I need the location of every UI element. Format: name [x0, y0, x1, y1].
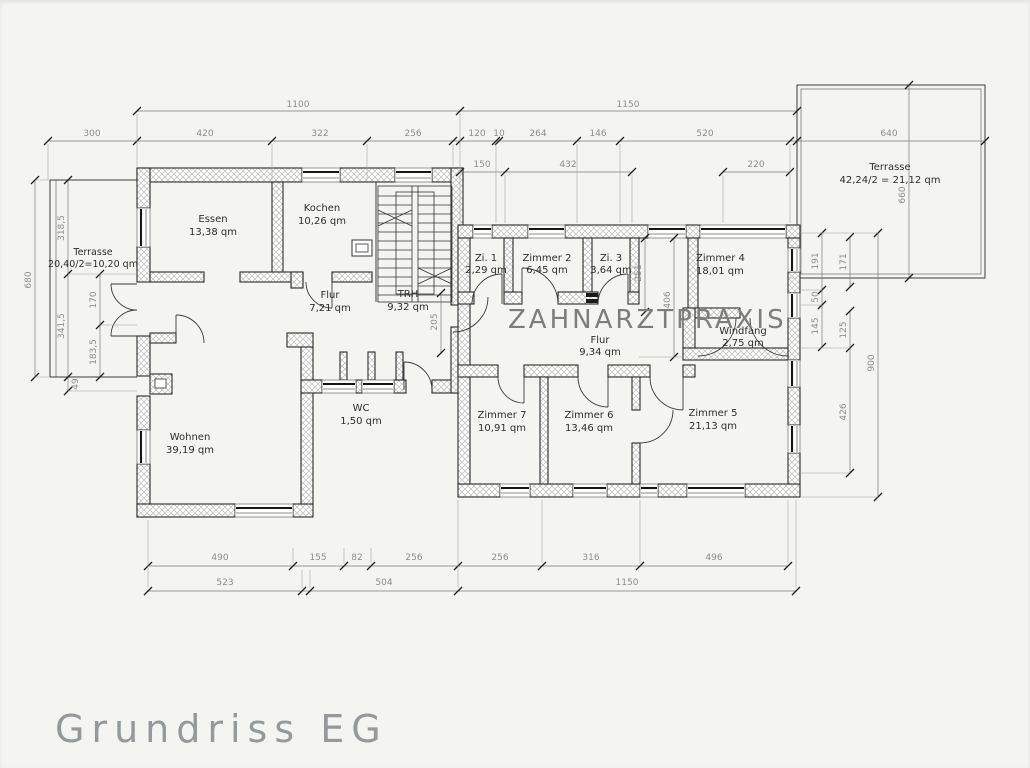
dimensions-right: 191 50 145 171 125 426 900 660: [788, 81, 913, 501]
z6-z5-door-arc: [640, 410, 673, 443]
room-area-zimmer6: 13,46 qm: [565, 423, 613, 434]
zimmer5-door-arc: [650, 377, 683, 410]
room-name-zi3: Zi. 3: [600, 253, 622, 264]
dim-label: 191: [811, 252, 821, 269]
window: [573, 484, 607, 497]
dim-label: 170: [89, 291, 99, 308]
room-area-zimmer4: 18,01 qm: [696, 266, 744, 277]
dim-label: 145: [811, 317, 821, 334]
window: [395, 168, 432, 182]
dim-label: 523: [216, 578, 233, 588]
dim-label: 256: [405, 553, 422, 563]
terrace-door-arc: [111, 284, 137, 310]
room-area-zi3: 3,64 qm: [590, 265, 632, 276]
room-area-terrasse-left: 20,40/2=10,20 qm: [48, 259, 138, 270]
dim-label: 1100: [287, 100, 310, 110]
dim-label: 150: [473, 160, 490, 170]
dim-label: 50: [811, 291, 821, 303]
dim-label: 155: [309, 553, 326, 563]
zi1-door-arc: [472, 274, 502, 304]
room-area-zi1: 2,29 qm: [465, 265, 507, 276]
window: [322, 380, 356, 393]
room-name-zimmer5: Zimmer 5: [689, 408, 738, 419]
stair-break-marks: [378, 210, 452, 284]
room-name-zimmer7: Zimmer 7: [478, 410, 527, 421]
room-area-zimmer7: 10,91 qm: [478, 423, 526, 434]
dim-label: 432: [559, 160, 576, 170]
room-name-flur-right: Flur: [591, 335, 611, 346]
dimensions-left: 680 318,5 341,5 49 170 183,5: [24, 176, 137, 395]
window: [473, 225, 492, 238]
dim-label: 504: [375, 578, 392, 588]
room-area-trh: 9,32 qm: [387, 302, 429, 313]
room-name-zi1: Zi. 1: [475, 253, 497, 264]
terrace-door-arc: [111, 310, 137, 336]
window: [235, 504, 293, 517]
zimmer7-door-arc: [498, 377, 524, 403]
room-name-flur-left: Flur: [321, 290, 341, 301]
middle-door-arc: [404, 362, 432, 390]
dim-label: 120: [468, 129, 485, 139]
room-name-kochen: Kochen: [304, 203, 341, 214]
zi3-door-arc: [598, 274, 628, 304]
dim-label: 520: [696, 129, 713, 139]
page-title: Grundriss EG: [55, 707, 388, 751]
dim-label: 426: [839, 403, 849, 420]
window: [137, 430, 150, 464]
room-name-terrasse-left: Terrasse: [72, 247, 112, 258]
room-name-essen: Essen: [198, 214, 227, 225]
window: [687, 484, 745, 497]
room-name-zimmer2: Zimmer 2: [523, 253, 572, 264]
wohnen-door-arc: [176, 315, 204, 343]
dim-label: 171: [839, 253, 849, 270]
dim-label: 220: [747, 160, 764, 170]
room-area-zimmer2: 6,45 qm: [526, 265, 568, 276]
window: [137, 208, 150, 247]
dim-label: 183,5: [89, 339, 99, 365]
window: [640, 484, 658, 497]
dim-label: 146: [589, 129, 606, 139]
room-labels: Essen 13,38 qm Kochen 10,26 qm Flur 7,21…: [48, 162, 940, 456]
dim-guides-right: [788, 233, 878, 497]
room-area-flur-right: 9,34 qm: [579, 347, 621, 358]
room-area-wohnen: 39,19 qm: [166, 445, 214, 456]
dim-label: 322: [311, 129, 328, 139]
dim-label: 251: [634, 264, 644, 281]
dim-label: 264: [529, 129, 546, 139]
dim-label: 660: [898, 186, 908, 203]
dim-label: 316: [582, 553, 599, 563]
dim-label: 256: [404, 129, 421, 139]
floor-plan-svg: 1100 1150 300 420 322 256 120 10 264 146…: [0, 0, 1030, 768]
dim-label: 10: [493, 129, 505, 139]
stairs: [378, 186, 452, 302]
dim-label: 49: [71, 378, 81, 390]
window: [648, 225, 686, 238]
dim-label: 900: [867, 354, 877, 371]
room-area-terrasse-right: 42,24/2 = 21,12 qm: [840, 175, 941, 186]
room-name-wohnen: Wohnen: [170, 432, 211, 443]
dim-label: 680: [24, 271, 34, 288]
room-name-zimmer4: Zimmer 4: [696, 253, 745, 264]
room-area-essen: 13,38 qm: [189, 227, 237, 238]
window: [788, 425, 800, 453]
room-area-zimmer5: 21,13 qm: [689, 421, 737, 432]
room-name-terrasse-right: Terrasse: [868, 162, 910, 173]
stair-treads: [378, 196, 452, 295]
dim-label: 300: [83, 129, 100, 139]
zimmer6-door-arc: [578, 377, 608, 407]
room-area-wc: 1,50 qm: [340, 416, 382, 427]
window: [700, 225, 786, 238]
room-area-kochen: 10,26 qm: [298, 216, 346, 227]
room-area-flur-left: 7,21 qm: [309, 303, 351, 314]
fixtures: [352, 240, 372, 256]
room-area-windfang: 2,75 qm: [722, 338, 764, 349]
window: [788, 248, 800, 272]
window: [788, 360, 800, 387]
dim-label: 82: [351, 553, 362, 563]
dim-label: 205: [430, 313, 440, 330]
dim-label: 256: [491, 553, 508, 563]
window: [302, 168, 340, 182]
dim-label: 640: [880, 129, 897, 139]
room-name-wc: WC: [353, 403, 370, 414]
window: [788, 293, 800, 318]
room-name-trh: TRH: [397, 289, 419, 300]
dimensions-top: 1100 1150 300 420 322 256 120 10 264 146…: [44, 100, 989, 223]
window: [528, 225, 565, 238]
window: [362, 380, 394, 393]
dim-label: 318,5: [57, 215, 67, 241]
dim-label: 496: [705, 553, 722, 563]
room-name-zimmer6: Zimmer 6: [565, 410, 614, 421]
dim-label: 1150: [616, 578, 639, 588]
window: [500, 484, 530, 497]
floor-plan-page: 1100 1150 300 420 322 256 120 10 264 146…: [0, 0, 1030, 768]
kitchen-sink: [352, 240, 372, 256]
practice-label: ZAHNARZTPRAXIS: [508, 305, 787, 335]
dim-label: 125: [839, 321, 849, 338]
dim-label: 341,5: [57, 313, 67, 339]
dim-label: 490: [211, 553, 228, 563]
dim-label: 420: [196, 129, 213, 139]
dim-label: 1150: [617, 100, 640, 110]
